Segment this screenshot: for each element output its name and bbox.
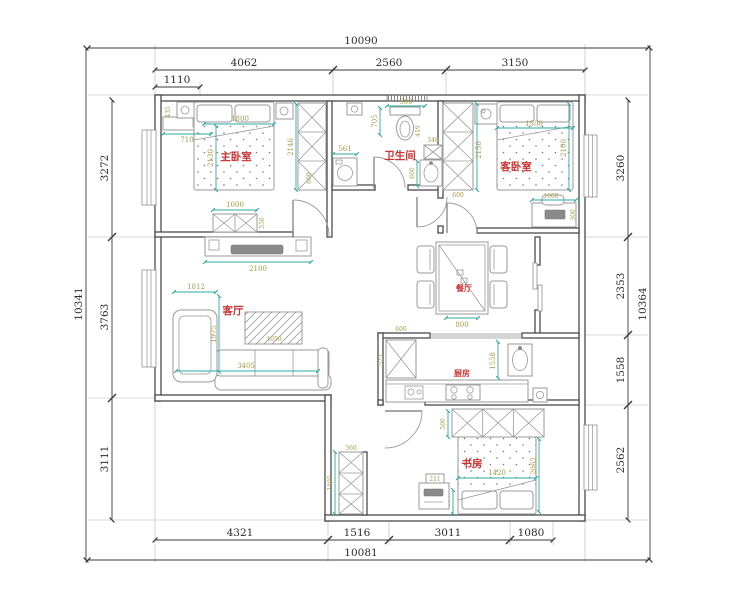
wall-dining-right-lower xyxy=(535,310,540,335)
dim-kitchen-fridge: 600 xyxy=(395,326,407,333)
room-guest-bedroom: 1500 2100 2150 600 1000 300 客卧室 xyxy=(443,102,577,227)
dim-guest-ward-l: 2150 xyxy=(475,141,483,159)
dim-top-s1: 4062 xyxy=(231,57,258,69)
wall-guest-bottom xyxy=(477,228,579,233)
dim-right-s2: 2353 xyxy=(615,273,627,300)
guest-cabinet xyxy=(475,104,497,124)
wall-master-bath xyxy=(327,101,332,237)
dim-left-total: 10341 xyxy=(73,287,85,320)
window-living xyxy=(142,270,156,367)
dim-study-desk: 211 xyxy=(429,476,440,483)
window-guest xyxy=(584,135,597,197)
kitchen-fridge xyxy=(386,340,416,378)
dim-bath-side: 419 xyxy=(415,125,422,137)
dim-left-s3: 3111 xyxy=(99,446,111,473)
floor-plan-drawing: 10090 4062 2560 3150 1110 4321 1516 3011… xyxy=(0,0,740,600)
window-study xyxy=(584,425,597,490)
label-study: 书房 xyxy=(462,457,483,470)
wall-master-bottom xyxy=(155,232,293,237)
dim-top-s3: 3150 xyxy=(502,57,529,69)
dim-right-s1: 3260 xyxy=(615,155,627,182)
dim-guest-bed-w: 1500 xyxy=(525,120,543,128)
dim-guest-desk-w: 1000 xyxy=(543,193,558,200)
dim-guest-ward-w: 600 xyxy=(452,192,464,199)
label-bathroom: 卫生间 xyxy=(384,149,416,162)
label-dining: 餐厅 xyxy=(455,283,472,293)
guest-wardrobe xyxy=(443,103,473,190)
dim-study-bed-l: 2062 xyxy=(530,457,538,475)
wall-kitchen-top-left xyxy=(378,333,430,338)
dim-bath-toilet-d: 705 xyxy=(371,114,379,127)
dim-bottom-s3: 3011 xyxy=(435,527,462,539)
door-hall xyxy=(417,197,447,227)
kitchen-sink xyxy=(508,344,532,376)
door-master xyxy=(293,200,329,236)
dim-bath-washer: 561 xyxy=(338,145,351,153)
master-nightstand-right xyxy=(276,103,293,119)
dim-master-ward-l: 2146 xyxy=(287,138,295,156)
room-master-bedroom: 1800 2130 2146 600 710 435 1000 550 主卧室 xyxy=(163,102,326,232)
tv xyxy=(231,245,283,254)
door-guest xyxy=(447,203,477,233)
window-master xyxy=(142,130,156,205)
dim-bath-sink: 600 xyxy=(409,167,416,179)
wall-notch-top xyxy=(155,395,331,401)
dim-guest-desk-d: 300 xyxy=(570,209,577,221)
kitchen-stove xyxy=(446,385,480,400)
wall-study-stub xyxy=(378,400,383,405)
floor-plan-canvas: 10090 4062 2560 3150 1110 4321 1516 3011… xyxy=(0,0,740,600)
dim-master-dresser: 710 xyxy=(180,136,193,144)
kitchen-counter xyxy=(386,380,528,402)
dim-master-head: 435 xyxy=(165,106,172,118)
dim-master-cab-d: 550 xyxy=(259,217,266,229)
sliding-door-panel-2 xyxy=(538,285,542,311)
wall-guest-stub xyxy=(438,226,443,233)
dim-right-total: 10364 xyxy=(637,287,649,321)
kitchen-drain xyxy=(533,388,547,402)
room-study: 1405 360 500 1420 2062 800 211 书房 xyxy=(327,409,544,514)
label-guest-bedroom: 客卧室 xyxy=(499,160,532,173)
dining-chair xyxy=(417,246,434,273)
dim-right-s3: 1558 xyxy=(615,357,627,384)
dim-living-chaise: 1012 xyxy=(187,283,205,291)
study-desk xyxy=(419,483,449,509)
label-living: 客厅 xyxy=(222,304,244,317)
dim-guest-bed-l: 2100 xyxy=(560,139,568,157)
dining-table xyxy=(436,242,488,314)
dim-top-total: 10090 xyxy=(344,35,377,47)
dining-chair xyxy=(417,281,434,308)
dim-kitchen-height: 1558 xyxy=(489,352,497,370)
dining-chair xyxy=(490,246,507,273)
dim-left-s1: 3272 xyxy=(99,155,111,182)
dim-left-s2: 3763 xyxy=(99,304,111,331)
dim-top-s2: 2560 xyxy=(376,57,403,69)
wall-notch-right xyxy=(325,395,331,521)
label-kitchen: 厨房 xyxy=(454,368,470,378)
dim-bottom-s4: 1080 xyxy=(518,527,545,539)
bath-washer xyxy=(333,158,357,186)
room-dining: 餐厅 800 xyxy=(417,242,507,329)
dim-dining-clear: 800 xyxy=(455,321,468,329)
dim-right-s4: 2562 xyxy=(615,447,627,474)
door-study xyxy=(385,411,422,448)
dim-bottom-s1: 4321 xyxy=(227,527,254,539)
bath-vent xyxy=(347,103,362,115)
dim-master-ward-w: 600 xyxy=(306,172,313,184)
dim-hall-wardrobe: 1405 xyxy=(327,475,334,490)
dim-study-bed-w: 1420 xyxy=(488,469,506,477)
wall-bottom xyxy=(325,515,585,521)
dim-master-bed-w: 1800 xyxy=(231,115,249,123)
dining-chair xyxy=(490,281,507,308)
dim-kitchen-left: 523 xyxy=(378,354,385,366)
wall-top xyxy=(155,95,585,101)
dim-bath-shelf: 348 xyxy=(427,137,439,144)
master-floor-cabinet xyxy=(213,214,257,232)
dim-study-ward: 500 xyxy=(440,418,447,430)
dim-living-tv-wall: 2100 xyxy=(249,265,267,273)
wall-kitchen-left xyxy=(378,333,383,405)
dim-living-table: 1050 xyxy=(266,336,281,343)
dim-bath-toilet-w: 500 xyxy=(399,98,412,106)
dim-bottom-s2: 1516 xyxy=(344,527,371,539)
dim-hall-top: 360 xyxy=(345,445,357,452)
study-wardrobe xyxy=(452,409,544,437)
wall-kitchen-top-right xyxy=(522,333,579,338)
dim-master-bed-l: 2130 xyxy=(207,149,215,167)
label-master-bedroom: 主卧室 xyxy=(220,150,252,163)
bath-shelf xyxy=(424,145,442,159)
dim-bottom-total: 10081 xyxy=(344,547,377,559)
bath-sink xyxy=(420,160,442,186)
room-living: 2100 1012 1975 3405 1050 客厅 xyxy=(173,237,331,390)
wall-dining-right-upper xyxy=(535,237,540,265)
dim-top-sub: 1110 xyxy=(164,74,191,86)
hall-wardrobe xyxy=(339,452,363,514)
dim-living-depth: 1975 xyxy=(210,325,218,343)
sliding-door-panel-1 xyxy=(533,263,537,289)
living-tv-cabinet xyxy=(205,237,311,256)
dim-living-sofa: 3405 xyxy=(237,362,255,370)
master-nightstand-left xyxy=(177,102,194,118)
dim-master-cab-w: 1000 xyxy=(226,201,244,209)
room-bathroom: 500 705 561 348 419 600 卫生间 xyxy=(333,98,442,186)
